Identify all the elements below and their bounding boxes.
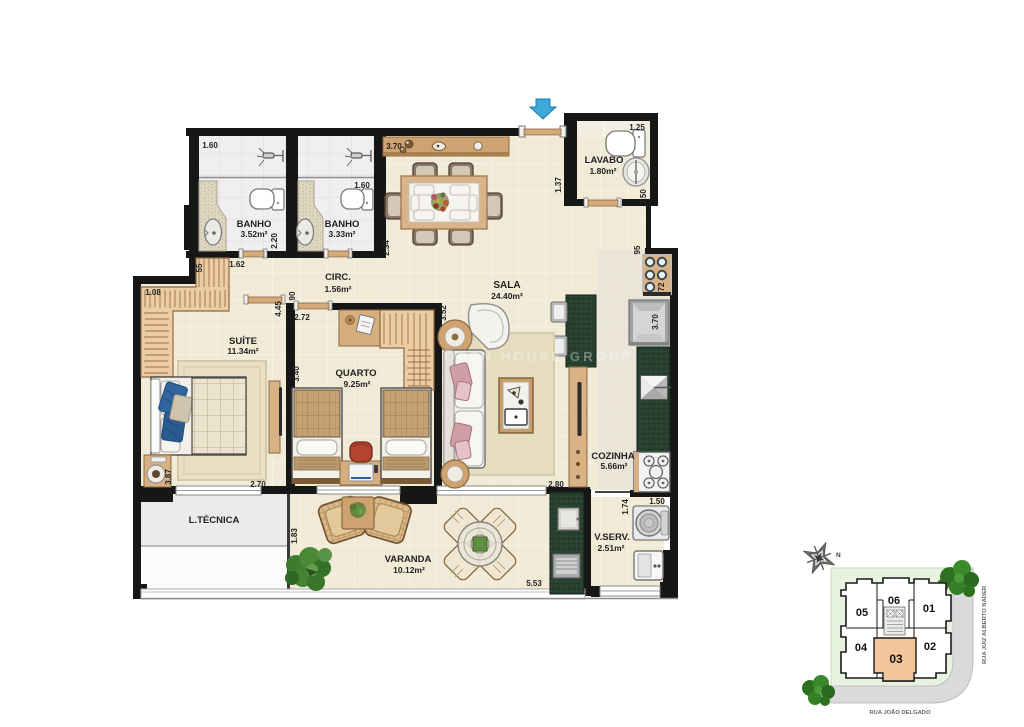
svg-text:I M O B I L I A R I A: I M O B I L I A R I A: [490, 369, 588, 376]
svg-text:1.83: 1.83: [290, 528, 299, 544]
svg-text:1.80m²: 1.80m²: [590, 166, 617, 176]
svg-text:L.TÉCNICA: L.TÉCNICA: [189, 515, 240, 526]
svg-text:1.62: 1.62: [229, 260, 245, 269]
svg-text:04: 04: [855, 642, 868, 654]
svg-text:1.50: 1.50: [639, 189, 648, 205]
svg-text:72: 72: [657, 282, 666, 291]
svg-text:06: 06: [888, 595, 900, 607]
svg-text:95: 95: [633, 245, 642, 254]
svg-text:90: 90: [288, 291, 297, 300]
svg-text:1.60: 1.60: [354, 181, 370, 190]
svg-text:9.25m²: 9.25m²: [344, 379, 371, 389]
svg-text:1.56m²: 1.56m²: [325, 284, 352, 294]
svg-text:N: N: [836, 552, 841, 559]
svg-text:02: 02: [924, 641, 936, 653]
svg-text:05: 05: [856, 607, 868, 619]
svg-text:1.08: 1.08: [145, 288, 161, 297]
svg-text:11.34m²: 11.34m²: [227, 346, 258, 356]
svg-text:RUA JOÃO DELGADO: RUA JOÃO DELGADO: [870, 709, 931, 716]
svg-text:4.45: 4.45: [274, 301, 283, 317]
svg-text:3.40: 3.40: [292, 366, 301, 382]
svg-text:LAVABO: LAVABO: [585, 155, 624, 166]
svg-text:2.70: 2.70: [250, 480, 266, 489]
svg-text:3.52: 3.52: [439, 305, 448, 321]
svg-text:2.51m²: 2.51m²: [598, 543, 625, 553]
svg-text:1.74: 1.74: [621, 499, 630, 515]
svg-text:03: 03: [889, 652, 903, 666]
svg-text:OPEN HOUSE GROUP: OPEN HOUSE GROUP: [444, 349, 633, 364]
svg-text:SALA: SALA: [493, 280, 520, 291]
svg-text:01: 01: [923, 603, 935, 615]
svg-text:24.40m²: 24.40m²: [491, 291, 523, 301]
svg-text:RUA JUIZ ALBERTO NADER: RUA JUIZ ALBERTO NADER: [982, 585, 988, 664]
svg-text:VARANDA: VARANDA: [385, 554, 432, 565]
svg-text:1.60: 1.60: [202, 141, 218, 150]
svg-text:V.SERV.: V.SERV.: [594, 532, 630, 543]
svg-text:1.25: 1.25: [629, 123, 645, 132]
svg-text:2.80: 2.80: [548, 480, 564, 489]
svg-text:CIRC.: CIRC.: [325, 272, 351, 283]
svg-text:3.87: 3.87: [164, 469, 173, 485]
svg-text:2.20: 2.20: [270, 233, 279, 249]
svg-text:1.50: 1.50: [649, 497, 665, 506]
svg-text:2.34: 2.34: [382, 240, 391, 256]
svg-text:3.33m²: 3.33m²: [329, 229, 356, 239]
svg-text:5.53: 5.53: [526, 579, 542, 588]
svg-text:QUARTO: QUARTO: [336, 368, 377, 379]
svg-text:3.70: 3.70: [386, 142, 402, 151]
svg-text:55: 55: [195, 263, 204, 272]
svg-text:1.37: 1.37: [554, 177, 563, 193]
svg-text:3.70: 3.70: [651, 314, 660, 330]
svg-text:2.72: 2.72: [294, 313, 310, 322]
svg-text:10.12m²: 10.12m²: [393, 565, 425, 575]
svg-text:5.66m²: 5.66m²: [601, 461, 628, 471]
svg-text:3.52m²: 3.52m²: [241, 229, 268, 239]
